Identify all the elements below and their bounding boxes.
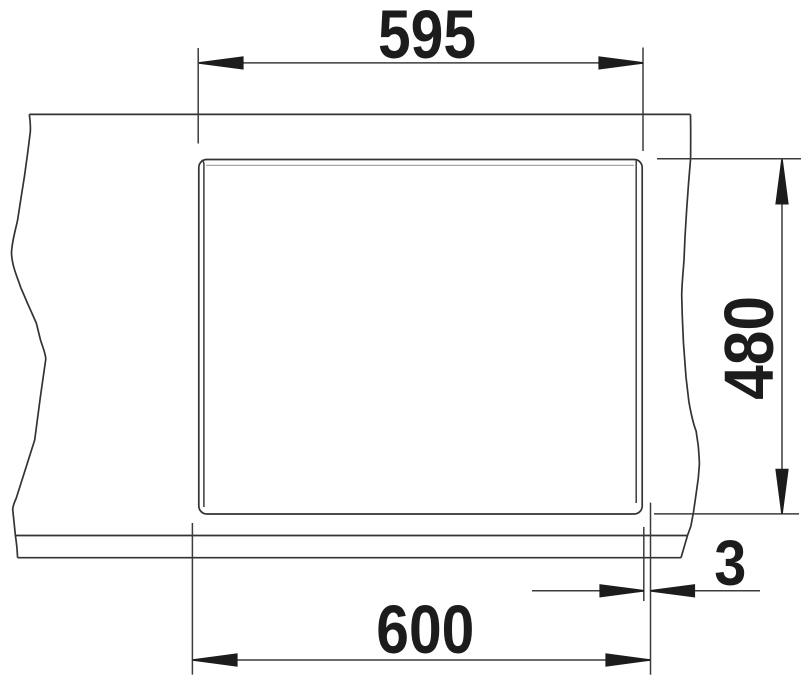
svg-text:595: 595 bbox=[378, 0, 476, 73]
svg-text:600: 600 bbox=[376, 591, 474, 669]
svg-text:3: 3 bbox=[714, 527, 746, 598]
svg-text:480: 480 bbox=[710, 296, 788, 400]
